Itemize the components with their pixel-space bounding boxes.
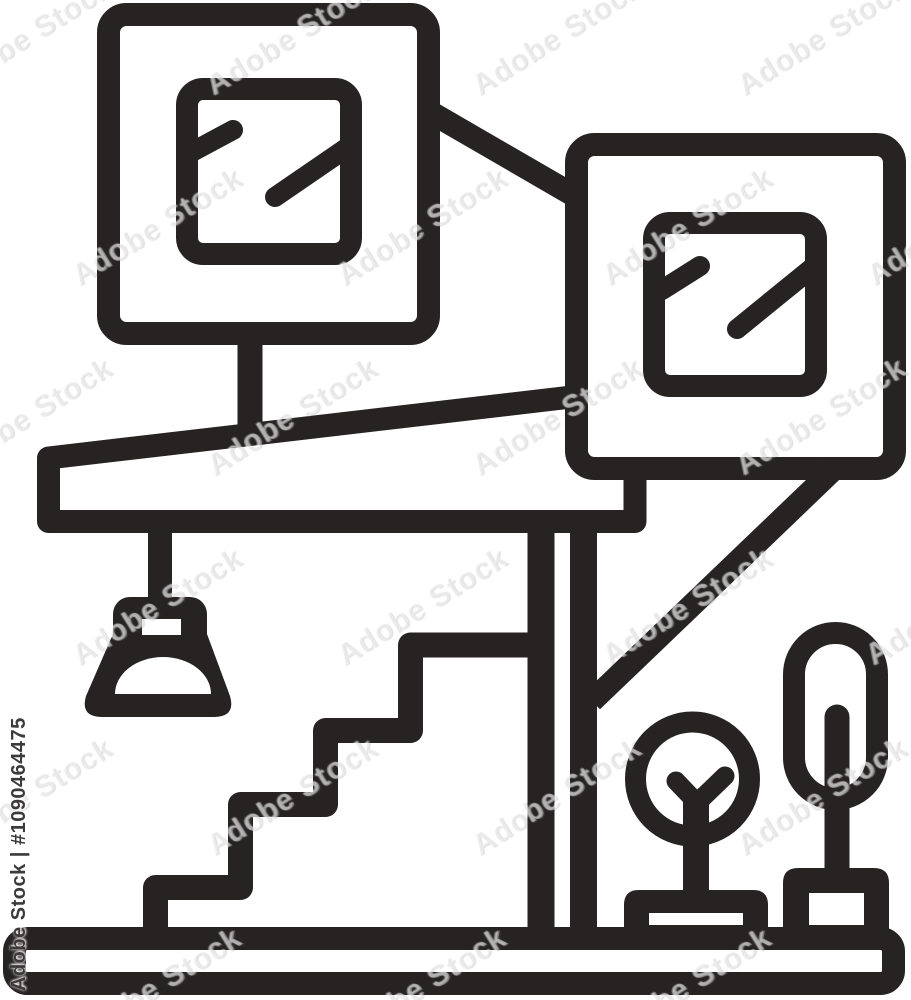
tall-tree-icon [783, 633, 889, 950]
round-bush-icon [624, 722, 768, 950]
adobe-stock-id-watermark: Adobe Stock | #1090464475 [8, 717, 31, 991]
picture-frame-right-icon [577, 145, 895, 469]
picture-frame-left-icon [109, 15, 429, 334]
frame-connector-line [430, 112, 575, 196]
ground-platform [15, 939, 894, 984]
duplex-interior-icon [0, 0, 911, 1000]
pendant-lamp-icon [85, 523, 232, 717]
stock-image-canvas: Adobe StockAdobe StockAdobe StockAdobe S… [0, 0, 911, 1000]
sloped-loft-beam [49, 396, 636, 522]
